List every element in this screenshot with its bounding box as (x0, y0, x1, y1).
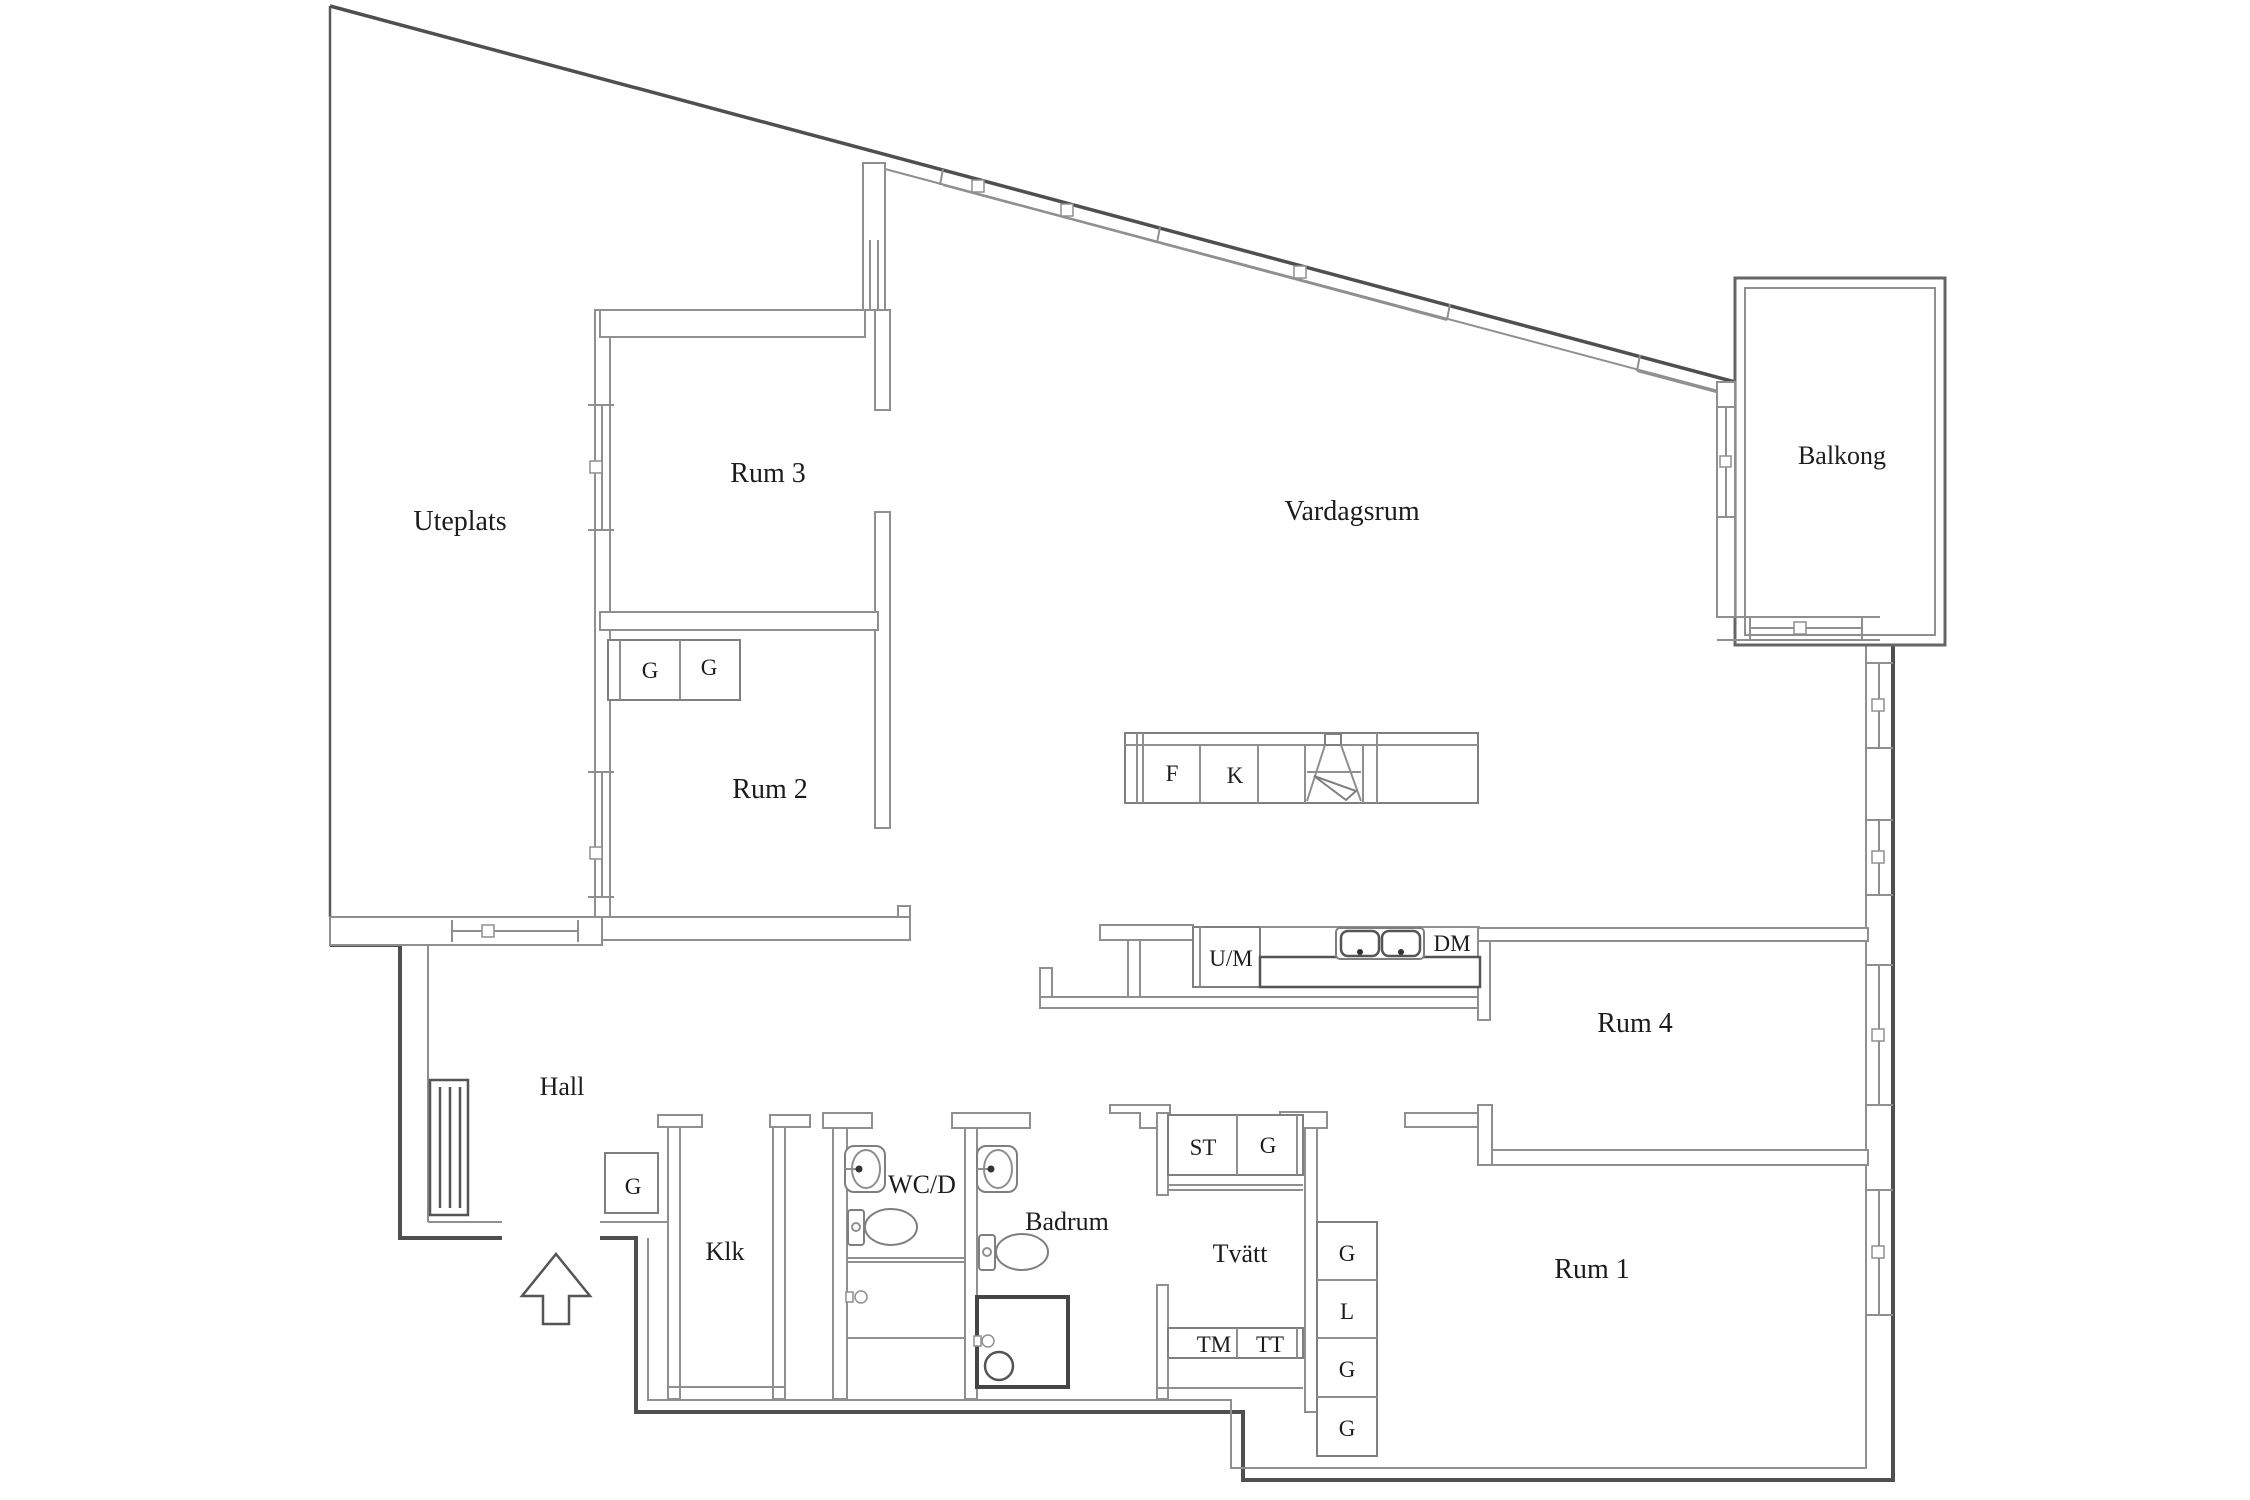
label-washing-machine: TM (1197, 1332, 1232, 1357)
label-column-g1: G (1339, 1241, 1356, 1266)
room-label-balkong: Balkong (1798, 441, 1886, 470)
washbasin-icon (845, 1146, 885, 1192)
room-label-rum4: Rum 4 (1597, 1008, 1672, 1039)
window-icon (1160, 243, 1450, 320)
label-dryer: TT (1256, 1332, 1284, 1357)
room-label-badrum: Badrum (1025, 1207, 1109, 1236)
window-icon (1866, 1190, 1893, 1315)
drain-icon (985, 1352, 1013, 1380)
uteplats-south-wall (330, 917, 602, 945)
window-icon (1866, 663, 1893, 748)
room-label-uteplats: Uteplats (413, 506, 506, 537)
rum2-rum3-divider (600, 612, 878, 630)
floor-plan-svg: Uteplats Rum 3 Vardagsrum Balkong Rum 2 … (0, 0, 2250, 1500)
rum4-walls (1478, 928, 1868, 1165)
entry-arrow-icon (522, 1254, 590, 1324)
label-rum2-g2: G (701, 655, 718, 680)
room-label-rum2: Rum 2 (732, 774, 807, 805)
label-column-g3: G (1339, 1416, 1356, 1441)
window-icon (1866, 965, 1893, 1105)
room-label-hall: Hall (540, 1072, 585, 1101)
toilet-icon (848, 1209, 917, 1245)
shower-icon (974, 1297, 1068, 1387)
radiator-icon (430, 1080, 468, 1215)
room-label-wcd: WC/D (888, 1170, 956, 1199)
corridor-north-wall (1040, 997, 1478, 1008)
label-column-l: L (1340, 1299, 1354, 1324)
label-freezer: K (1227, 763, 1244, 788)
laundry-upper-cabinets (1168, 1115, 1303, 1175)
rum2-closets (608, 640, 740, 700)
room-label-klk: Klk (706, 1237, 745, 1266)
outer-walls (330, 620, 1893, 1480)
rum1-walls (1405, 1113, 1868, 1165)
room-label-tvatt: Tvätt (1213, 1239, 1269, 1268)
room-label-rum3: Rum 3 (730, 458, 805, 489)
toilet-icon (979, 1234, 1048, 1270)
washbasin-icon (977, 1146, 1017, 1192)
label-rum2-g1: G (642, 658, 659, 683)
label-laundry-g: G (1260, 1133, 1277, 1158)
diagonal-boundary-wall (330, 6, 1735, 382)
label-column-g2: G (1339, 1357, 1356, 1382)
window-icon (1866, 820, 1893, 895)
room-label-rum1: Rum 1 (1554, 1254, 1629, 1285)
window-icon (940, 169, 1160, 243)
label-hall-g: G (625, 1174, 642, 1199)
label-fridge: F (1166, 761, 1179, 786)
label-st: ST (1190, 1135, 1217, 1160)
diagonal-window-band (885, 169, 1722, 393)
floor-plan: Uteplats Rum 3 Vardagsrum Balkong Rum 2 … (0, 0, 2250, 1500)
shower-icon (846, 1258, 965, 1338)
worktop (1260, 957, 1480, 987)
rum3-walls (600, 163, 890, 828)
east-wall-windows (1866, 663, 1893, 1315)
sink-basin-icon (1336, 928, 1424, 959)
label-oven-micro: U/M (1209, 946, 1252, 971)
badrum-fixtures (974, 1146, 1068, 1387)
site-boundary (330, 6, 1735, 917)
room-label-vardagsrum: Vardagsrum (1284, 496, 1420, 527)
label-dishwasher: DM (1433, 931, 1470, 956)
